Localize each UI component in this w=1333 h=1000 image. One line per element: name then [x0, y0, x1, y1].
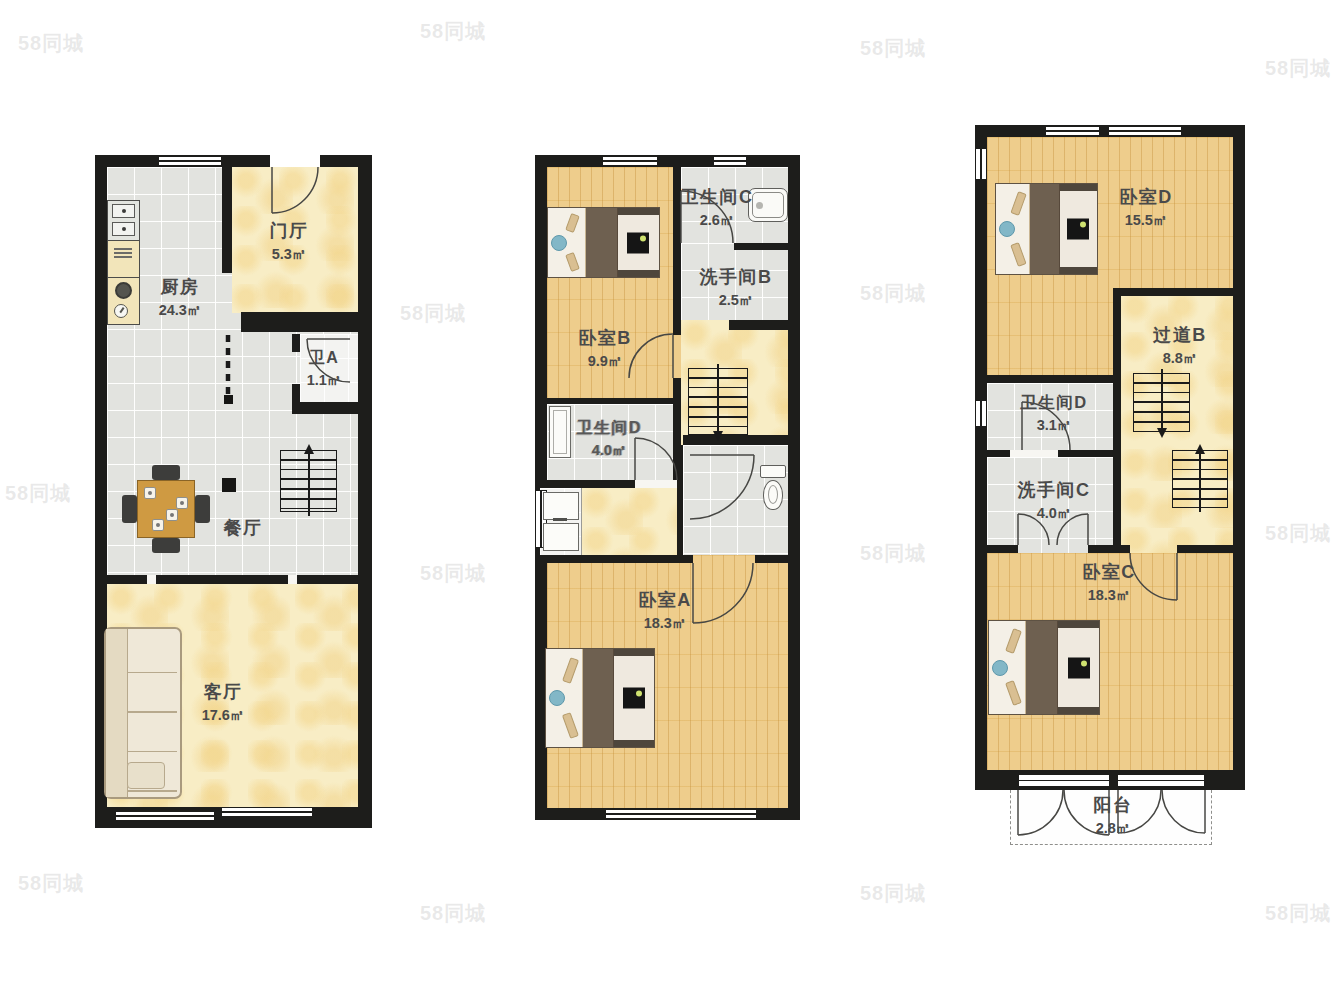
plate	[166, 509, 178, 521]
window	[158, 156, 222, 166]
bed-icon	[988, 620, 1100, 715]
wall	[987, 375, 1113, 383]
wardrobe-cap	[618, 208, 659, 215]
room-label-bathroom-d2: 卫生间D4.0㎡	[576, 418, 642, 460]
window	[1108, 126, 1182, 136]
stairs-rail	[717, 364, 719, 439]
round-cushion	[551, 235, 567, 251]
mattress	[989, 621, 1026, 714]
dining-table-icon	[122, 465, 210, 553]
mattress	[548, 208, 586, 277]
burner	[115, 282, 132, 299]
door-stop	[147, 575, 156, 584]
wall	[1088, 545, 1130, 553]
pillow	[565, 252, 580, 272]
floorplan-level-2: 卧室B9.9㎡ 卫生间C2.6㎡ 洗手间B2.5㎡ 卫生间D4.0㎡ 卧室A18…	[535, 155, 800, 820]
wall	[734, 243, 788, 250]
chair-icon	[152, 465, 180, 480]
chair-icon	[195, 495, 210, 523]
floorplan-level-1: 厨房24.3㎡ 门厅5.3㎡ 卫A1.1㎡ 餐厅 客厅17.6㎡	[95, 155, 372, 828]
vent-grill	[114, 248, 132, 259]
tv-icon	[623, 688, 645, 709]
entry-door-opening	[270, 155, 320, 167]
door-opening	[1010, 450, 1058, 457]
watermark: 58同城	[400, 300, 466, 327]
window	[1045, 126, 1100, 136]
watermark: 58同城	[860, 880, 926, 907]
room-label-kitchen: 厨房24.3㎡	[159, 275, 202, 320]
room-label-bedroom-b: 卧室B9.9㎡	[578, 326, 632, 371]
mattress	[546, 649, 583, 747]
stairs-rail	[1161, 369, 1163, 436]
mattress	[996, 184, 1030, 274]
watermark: 58同城	[860, 280, 926, 307]
wardrobe-cap	[1060, 184, 1097, 191]
pillow	[565, 213, 580, 233]
pillow	[1011, 191, 1027, 216]
tv-icon	[1067, 219, 1089, 240]
wardrobe-cap	[1060, 267, 1097, 274]
wall	[292, 402, 358, 414]
wall	[241, 312, 358, 332]
room-label-bathroom-d: 卫生间D3.1㎡	[1020, 392, 1087, 435]
chair-icon	[152, 538, 180, 553]
round-cushion	[549, 690, 565, 706]
sofa-icon	[104, 627, 182, 799]
sink-basin	[112, 222, 135, 236]
room-label-hallway-b: 过道B8.8㎡	[1153, 323, 1207, 368]
pillar	[1109, 770, 1118, 790]
kitchen-counter-icon	[107, 200, 140, 325]
window	[602, 156, 658, 166]
tv-icon	[627, 232, 649, 253]
duvet	[1030, 184, 1059, 274]
duvet	[1026, 621, 1058, 714]
window	[975, 400, 987, 427]
bed-icon	[995, 183, 1098, 275]
bathtub-icon	[748, 188, 788, 222]
watermark: 58同城	[420, 900, 486, 927]
chair-icon	[122, 495, 137, 523]
wardrobe-cap	[1058, 621, 1099, 628]
window	[713, 156, 747, 166]
floorplan-level-3: 卧室D15.5㎡ 过道B8.8㎡ 卫生间D3.1㎡ 洗手间C4.0㎡ 卧室C18…	[975, 125, 1245, 847]
armchair-icon	[127, 762, 165, 789]
wall	[755, 555, 788, 563]
toilet-icon	[760, 465, 786, 510]
wall	[677, 445, 683, 555]
wardrobe-icon	[614, 649, 654, 747]
room-label-bathroom-c: 卫生间C2.6㎡	[681, 185, 754, 230]
tv-icon	[1068, 657, 1090, 678]
wardrobe-cap	[614, 649, 654, 656]
watermark: 58同城	[5, 480, 71, 507]
toilet-bowl	[763, 480, 783, 510]
plate	[144, 487, 156, 499]
wall	[729, 320, 788, 330]
room-label-dining: 餐厅	[224, 516, 263, 540]
wall	[1113, 288, 1121, 545]
stairs-down-icon	[688, 368, 748, 435]
wall	[987, 545, 1018, 553]
arrow-down-icon	[713, 431, 723, 441]
duvet	[586, 208, 618, 277]
pillow	[1005, 681, 1022, 707]
toilet-tank	[760, 465, 786, 478]
room-label-washroom-b: 洗手间B2.5㎡	[700, 265, 773, 310]
washbasin-icon	[543, 492, 579, 520]
round-cushion	[999, 221, 1015, 237]
wardrobe-icon	[1060, 184, 1097, 274]
bed-icon	[545, 648, 655, 748]
room-label-entry: 门厅5.3㎡	[270, 219, 309, 264]
door-opening	[673, 335, 681, 378]
pillow	[1005, 629, 1022, 655]
duvet	[583, 649, 614, 747]
wardrobe-icon	[1058, 621, 1099, 714]
shower-icon	[549, 406, 571, 458]
door-stop	[288, 575, 297, 584]
arrow-down-icon	[1157, 428, 1167, 438]
pillow	[562, 657, 579, 684]
stairs-rail	[1199, 446, 1201, 512]
round-cushion	[992, 660, 1008, 676]
window	[221, 807, 313, 817]
room-label-bedroom-a: 卧室A18.3㎡	[638, 588, 692, 633]
wardrobe-icon	[618, 208, 659, 277]
table-top	[137, 480, 195, 538]
floorplan-canvas: 58同城 58同城 58同城 58同城 58同城 58同城 58同城 58同城 …	[0, 0, 1333, 1000]
stairs-rail	[308, 446, 310, 516]
wardrobe-cap	[614, 740, 654, 747]
door-opening	[635, 480, 677, 488]
room-label-living: 客厅17.6㎡	[202, 680, 245, 725]
washbasin-icon	[543, 523, 579, 551]
window	[605, 809, 757, 819]
stairs-up-icon	[280, 450, 337, 512]
stairs-down-icon	[1133, 373, 1190, 432]
room-hall-patch	[582, 488, 683, 555]
wall	[547, 555, 693, 563]
room-label-bedroom-d: 卧室D15.5㎡	[1119, 185, 1173, 230]
watermark: 58同城	[420, 18, 486, 45]
room-label-bedroom-c: 卧室C18.3㎡	[1082, 560, 1136, 605]
wall	[107, 575, 358, 584]
wall	[1177, 545, 1233, 553]
wall	[547, 398, 681, 404]
watermark: 58同城	[860, 35, 926, 62]
watermark: 58同城	[1265, 520, 1331, 547]
pillar	[224, 395, 233, 404]
window	[115, 811, 215, 821]
watermark: 58同城	[1265, 900, 1331, 927]
wardrobe-cap	[1058, 707, 1099, 714]
plate	[176, 497, 188, 509]
watermark: 58同城	[860, 540, 926, 567]
wardrobe-cap	[618, 270, 659, 277]
watermark: 58同城	[18, 30, 84, 57]
pillar	[222, 478, 236, 492]
pillow	[1011, 242, 1027, 267]
wall	[222, 167, 232, 273]
sofa-back	[106, 629, 128, 797]
watermark: 58同城	[1265, 55, 1331, 82]
sink-basin	[112, 204, 135, 218]
wall	[1121, 288, 1233, 296]
faucet-icon	[553, 518, 567, 521]
counter-top	[108, 241, 139, 278]
room-label-bath-a: 卫A1.1㎡	[307, 348, 342, 390]
room-label-washroom-c: 洗手间C4.0㎡	[1018, 478, 1091, 523]
room-label-balcony: 阳台2.8㎡	[1094, 793, 1133, 838]
arrow-up-icon	[304, 444, 314, 454]
pillow	[562, 712, 579, 739]
kitchen-sink-icon	[108, 201, 139, 241]
stove-icon	[108, 278, 139, 324]
plate	[152, 519, 164, 531]
bed-icon	[547, 207, 660, 278]
wall	[683, 435, 788, 445]
stairs-up-icon	[1172, 450, 1228, 508]
wall	[292, 384, 300, 402]
watermark: 58同城	[420, 560, 486, 587]
arrow-up-icon	[1195, 444, 1205, 454]
stove-dial	[114, 304, 128, 318]
window	[975, 148, 987, 180]
wall	[292, 334, 300, 352]
watermark: 58同城	[18, 870, 84, 897]
